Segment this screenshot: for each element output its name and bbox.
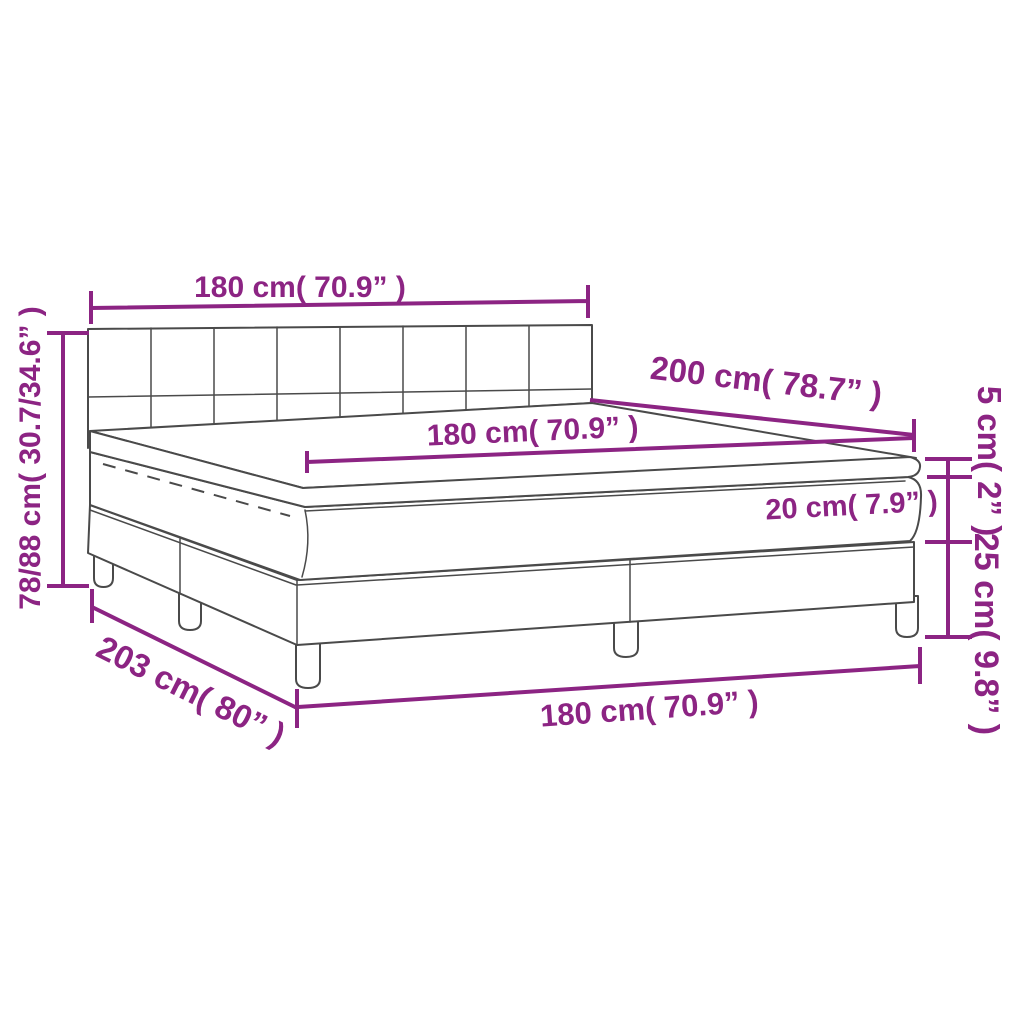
base-width-label: 180 cm( 70.9” )	[539, 683, 760, 733]
leg	[296, 640, 320, 688]
overall-height-label: 78/88 cm( 30.7/34.6” )	[14, 306, 47, 610]
topper-height-label: 5 cm( 2” )	[971, 386, 1008, 536]
diagram-canvas: 180 cm( 70.9” ) 78/88 cm( 30.7/34.6” ) 2…	[0, 0, 1024, 1024]
bed-dimension-diagram: 180 cm( 70.9” ) 78/88 cm( 30.7/34.6” ) 2…	[0, 0, 1024, 1024]
overall-height-dimension-line	[47, 333, 89, 586]
base-height-label: 25 cm( 9.8” )	[967, 533, 1005, 735]
length-label: 200 cm( 78.7” )	[648, 349, 884, 413]
headboard-width-label: 180 cm( 70.9” )	[194, 271, 406, 304]
